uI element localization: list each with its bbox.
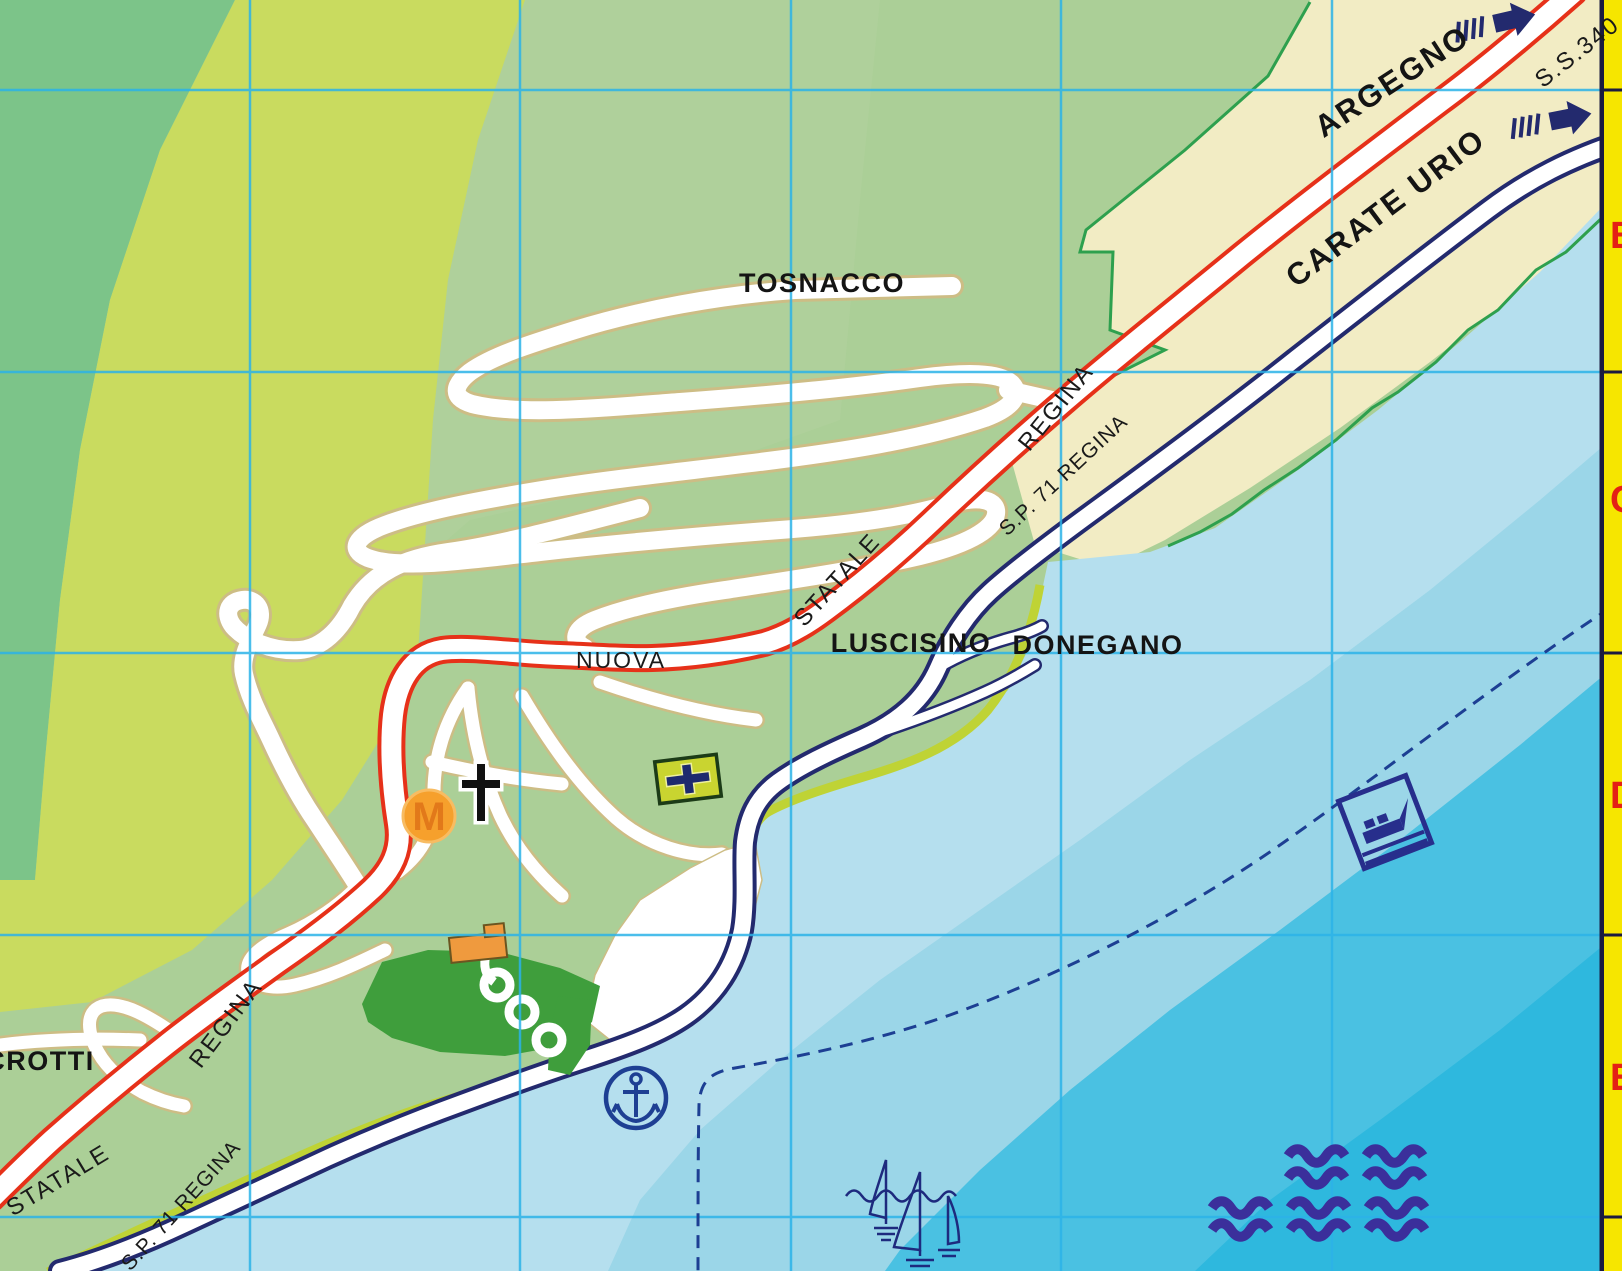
town-street-map: M [0, 0, 1622, 1271]
m-marker-letter: M [412, 795, 445, 839]
label-nuova: NUOVA [576, 647, 666, 673]
label-donegano: DONEGANO [1012, 630, 1183, 660]
grid-row-letter: B [1610, 215, 1622, 257]
label-crotti: CROTTI [0, 1046, 95, 1076]
first-aid-icon [655, 754, 722, 803]
label-luscisino: LUSCISINO [831, 628, 992, 658]
grid-row-letter: C [1610, 479, 1622, 521]
map-edge-strip: B C D E [1602, 0, 1622, 1271]
grid-row-letter: E [1610, 1057, 1622, 1099]
label-tosnacco: TOSNACCO [739, 268, 905, 298]
grid-row-letter: D [1610, 775, 1622, 817]
monument-m-icon: M [403, 790, 455, 842]
